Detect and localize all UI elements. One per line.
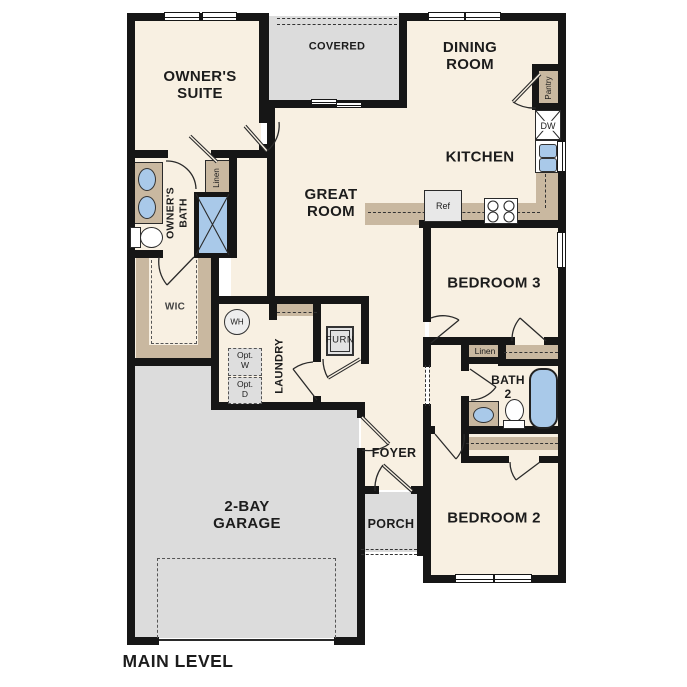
counter-dashed [545,174,546,208]
patio-edge-dashed [277,24,397,25]
wic-shelf-bottom [136,345,211,358]
wall [463,357,503,364]
room-label-dining: DINING ROOM [443,39,497,74]
wic-shelf-right [198,256,211,358]
room-label-bath2: BATH 2 [491,374,525,402]
wall [544,337,566,345]
garage-door-outline [157,558,336,638]
bath2-sink [473,407,494,423]
shelf-dashed [277,312,317,313]
room-label-wic: WIC [165,301,185,313]
fixture-label-pantry: Pantry [544,76,554,99]
wall [127,358,219,366]
wall [361,296,369,364]
window [164,12,200,21]
window [465,12,501,21]
fixture-label-opt-dryer: Opt. D [237,380,253,400]
floor-great-room [267,106,425,406]
wic-shelf-left [136,256,149,358]
wall [269,296,277,320]
room-label-laundry: LAUNDRY [273,338,286,393]
wall [423,426,435,434]
wall [558,13,566,583]
plan-title: MAIN LEVEL [123,651,234,671]
room-label-great-room: GREAT ROOM [305,186,358,221]
garage-door-opening [159,639,334,641]
room-label-bedroom2: BEDROOM 2 [447,509,541,526]
fixture-label-opt-washer: Opt. W [237,351,253,371]
kitchen-sink-bowl [539,144,557,158]
wall [399,13,407,108]
wall [127,637,159,645]
fixture-label-furnace: FURN [326,336,354,347]
wall [461,341,469,371]
window [557,232,566,268]
wall [357,402,365,418]
porch-step-dashed [361,549,417,550]
wall [211,296,323,304]
wall [461,456,509,463]
kitchen-counter-right [536,168,558,206]
bath2-toilet-bowl [505,399,524,422]
wall [357,486,379,494]
room-label-foyer: FOYER [372,446,417,460]
wall [423,220,431,322]
room-label-kitchen: KITCHEN [446,148,515,165]
porch-step-dashed [361,554,417,555]
wall [211,150,267,158]
patio-slider-panel [336,102,362,108]
bathtub [529,368,558,429]
room-label-owners-bath: OWNER'S BATH [164,187,189,239]
wall [423,428,431,583]
wall [313,296,321,362]
owners-sink [138,168,156,191]
wall [127,13,135,644]
wall [357,551,365,645]
covered-patio-area [267,16,400,102]
fixture-label-linen-hall: Linen [475,347,496,357]
room-label-owners-suite: OWNER'S SUITE [163,68,236,103]
stove [484,198,518,224]
floor-plan: OWNER'S SUITE COVERED DINING ROOM KITCHE… [0,0,687,687]
shelf-dashed [504,352,558,353]
bath2-toilet-tank [503,420,525,429]
cased-opening [429,365,430,406]
window [202,12,237,21]
wall [334,637,365,645]
room-label-garage: 2-BAY GARAGE [213,498,281,533]
room-label-porch: PORCH [368,517,415,531]
window [494,574,532,583]
wall [211,250,219,410]
fixture-label-linen-owners: Linen [212,168,222,188]
wall [498,359,566,366]
shelf-dashed [466,443,558,444]
shower [194,192,232,258]
wall [127,150,168,158]
fixture-label-ref: Ref [436,201,450,211]
window [557,141,566,172]
window [455,574,494,583]
kitchen-sink-bowl [539,158,557,172]
wall [539,456,561,463]
room-label-bedroom3: BEDROOM 3 [447,274,541,291]
fixture-label-wh: WH [230,317,243,326]
window [428,12,465,21]
wall [532,103,565,110]
patio-edge-dashed [277,18,397,19]
wall [357,448,365,558]
laundry-shelf [277,304,317,316]
owners-toilet-bowl [140,227,163,248]
fixture-label-dw: DW [540,121,557,131]
wall [267,108,275,304]
cased-opening [425,365,426,406]
patio-slider-panel [311,99,337,105]
wall [127,250,163,258]
room-label-covered: COVERED [309,41,366,54]
wall [461,396,469,430]
owners-sink [138,196,156,219]
